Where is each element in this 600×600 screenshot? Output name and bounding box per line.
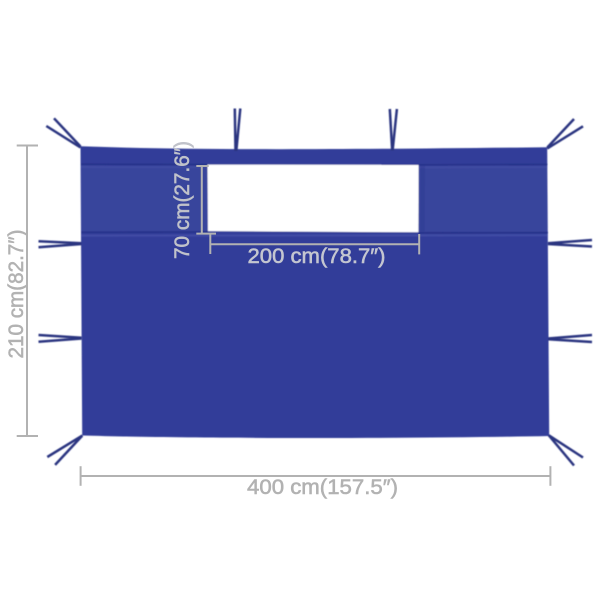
svg-text:400 cm(157.5″): 400 cm(157.5″) xyxy=(247,476,398,499)
svg-text:210 cm(82.7″): 210 cm(82.7″) xyxy=(5,230,28,359)
svg-text:200 cm(78.7″): 200 cm(78.7″) xyxy=(248,245,386,268)
svg-text:70 cm(27.6″): 70 cm(27.6″) xyxy=(171,141,194,259)
